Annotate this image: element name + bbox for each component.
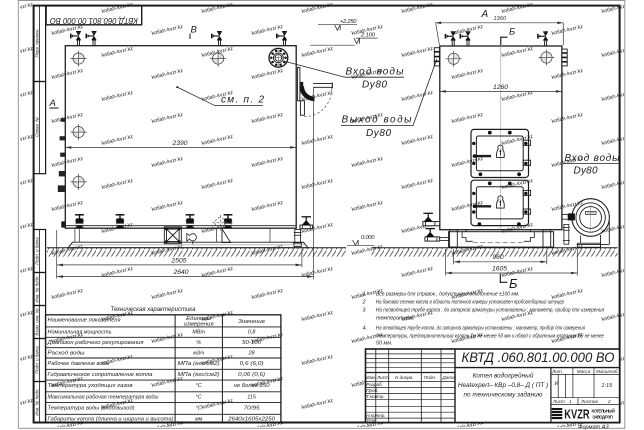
svg-text:температуры, предохранительный: температуры, предохранительный клапан Dу…	[376, 332, 604, 339]
svg-text:Техническая характеристика: Техническая характеристика	[111, 307, 197, 313]
svg-text:50 мм.: 50 мм.	[376, 341, 392, 347]
svg-text:Масштаб: Масштаб	[596, 369, 618, 374]
svg-text:Максимальная рабочая температу: Максимальная рабочая температура воды	[48, 395, 159, 401]
svg-text:Номинальная мощность: Номинальная мощность	[48, 329, 112, 335]
svg-text:1:15: 1:15	[601, 383, 613, 389]
svg-text:На боковой стенке котла в обла: На боковой стенке котла в области топочн…	[376, 298, 564, 305]
svg-text:Разраб.: Разраб.	[366, 382, 383, 387]
svg-text:мм: мм	[195, 416, 203, 422]
svg-text:Гидравлическое сопротивление к: Гидравлическое сопротивление котла	[48, 372, 153, 378]
svg-text:Подп. и дата: Подп. и дата	[34, 346, 39, 374]
svg-text:°С: °С	[196, 406, 202, 412]
svg-text:МПа (кгс/см2): МПа (кгс/см2)	[178, 361, 220, 367]
svg-text:0,06 (0,6): 0,06 (0,6)	[238, 372, 265, 378]
svg-text:0,8: 0,8	[248, 329, 256, 335]
svg-text:1: 1	[569, 399, 572, 404]
svg-text:960: 960	[492, 254, 503, 261]
svg-text:28: 28	[248, 350, 255, 356]
svg-text:1360: 1360	[494, 16, 507, 22]
svg-text:Подп. и дата: Подп. и дата	[34, 237, 39, 265]
svg-text:Вход воды: Вход воды	[565, 153, 621, 164]
svg-text:Температура воды (вход/выход): Температура воды (вход/выход)	[48, 406, 135, 412]
svg-text:Dу80: Dу80	[574, 166, 598, 177]
svg-text:температуры.: температуры.	[376, 316, 415, 322]
svg-text:не более 250: не более 250	[234, 383, 270, 389]
svg-text:0,6 (6,0): 0,6 (6,0)	[240, 361, 264, 367]
svg-text:Dу80: Dу80	[366, 128, 391, 139]
svg-text:В: В	[191, 25, 198, 36]
svg-text:Проб.: Проб.	[366, 388, 378, 393]
svg-text:На подводящей трубе котла ,: На подводящей трубе котла , до запорной …	[376, 306, 604, 313]
svg-text:°С: °С	[196, 395, 202, 401]
svg-text:Лит.: Лит.	[551, 369, 563, 374]
svg-text:N докум.: N докум.	[395, 375, 414, 380]
svg-text:2640х1605х2250: 2640х1605х2250	[227, 416, 275, 422]
svg-text:КВТД.060.801.00.000 ВО: КВТД.060.801.00.000 ВО	[49, 16, 138, 25]
svg-text:МВт: МВт	[192, 329, 205, 335]
svg-text:Температура уходящих газов: Температура уходящих газов	[48, 383, 133, 389]
svg-text:Масса: Масса	[577, 369, 591, 374]
svg-text:Лист: Лист	[376, 375, 389, 380]
svg-text:И: И	[555, 381, 559, 387]
svg-text:по техническому заданию: по техническому заданию	[464, 391, 543, 399]
svg-text:м3/ч: м3/ч	[193, 350, 204, 356]
svg-text:50-100: 50-100	[242, 340, 261, 346]
svg-text:КОТЕЛЬНЫЙ: КОТЕЛЬНЫЙ	[592, 409, 616, 414]
svg-text:измерения: измерения	[184, 322, 214, 328]
svg-text:Наименование показателя: Наименование показателя	[48, 318, 121, 324]
svg-text:Инв. № подл.: Инв. № подл.	[34, 388, 39, 415]
svg-text:КВТД .060.801.00.000 ВО: КВТД .060.801.00.000 ВО	[462, 350, 615, 365]
svg-text:см. п. 2: см. п. 2	[221, 95, 264, 106]
svg-text:2505: 2505	[171, 257, 187, 264]
svg-text:Dу80: Dу80	[362, 80, 387, 91]
svg-text:2390: 2390	[172, 140, 188, 147]
svg-text:°С: °С	[196, 383, 202, 389]
svg-text:На отводящей трубе котла ,до з: На отводящей трубе котла ,до запорной ар…	[376, 325, 585, 332]
svg-text:1605: 1605	[492, 265, 507, 272]
svg-text:Подп.: Подп.	[424, 375, 436, 380]
svg-text:Рабочее давление воды: Рабочее давление воды	[48, 361, 110, 367]
svg-text:+2.250: +2.250	[340, 19, 357, 25]
svg-text:Б: Б	[509, 276, 518, 291]
svg-text:2.100: 2.100	[360, 33, 376, 39]
svg-text:1: 1	[363, 291, 366, 297]
svg-text:Справ. №: Справ. №	[34, 117, 39, 137]
svg-text:2640: 2640	[173, 269, 189, 276]
svg-text:Дата: Дата	[442, 375, 456, 380]
svg-text:МПа (кгс/см2): МПа (кгс/см2)	[178, 372, 220, 378]
svg-text:Перв. примен.: Перв. примен.	[34, 28, 39, 57]
svg-text:2: 2	[362, 299, 366, 305]
svg-text:Выход воды: Выход воды	[342, 115, 413, 126]
svg-text:115: 115	[247, 395, 257, 401]
svg-text:Вход воды: Вход воды	[346, 67, 405, 78]
svg-text:KVZR: KVZR	[564, 407, 590, 422]
svg-text:2: 2	[607, 399, 611, 404]
svg-text:Взам. инв. №: Взам. инв. №	[34, 308, 39, 335]
svg-text:Б: Б	[509, 27, 515, 38]
svg-text:Heatexpert– КВр –0,8– Д ( ПТ ): Heatexpert– КВр –0,8– Д ( ПТ )	[458, 382, 548, 389]
svg-text:А: А	[481, 9, 489, 20]
svg-text:Т.контр.: Т.контр.	[366, 394, 385, 399]
svg-text:3: 3	[363, 307, 366, 313]
svg-text:Диапазон рабочего регулировани: Диапазон рабочего регулирования	[46, 340, 143, 346]
svg-text:Габариты котла (длинна и ширин: Габариты котла (длинна и ширина и высота…	[48, 416, 174, 422]
svg-text:Утв.: Утв.	[366, 418, 376, 423]
svg-text:1260: 1260	[493, 84, 508, 91]
svg-text:Формат А3: Формат А3	[578, 425, 609, 430]
svg-text:Лист: Лист	[552, 399, 565, 404]
svg-text:4.: 4.	[363, 326, 368, 332]
svg-text:70/95: 70/95	[244, 406, 261, 412]
svg-text:ЗАВОД РЭП: ЗАВОД РЭП	[592, 414, 613, 419]
svg-text:0.000: 0.000	[361, 235, 375, 241]
svg-text:Все размеры для справок , допу: Все размеры для справок , допустимое отк…	[376, 291, 520, 297]
svg-text:Расход воды: Расход воды	[48, 350, 85, 356]
svg-text:Инв. № дубл.: Инв. № дубл.	[34, 275, 39, 302]
svg-text:Котел водогрейный: Котел водогрейный	[473, 372, 534, 380]
svg-text:Значение: Значение	[238, 319, 265, 325]
svg-text:Листов: Листов	[580, 399, 598, 404]
svg-text:А: А	[49, 98, 56, 109]
svg-text:Изм.: Изм.	[366, 375, 376, 380]
svg-text:%: %	[196, 340, 201, 346]
